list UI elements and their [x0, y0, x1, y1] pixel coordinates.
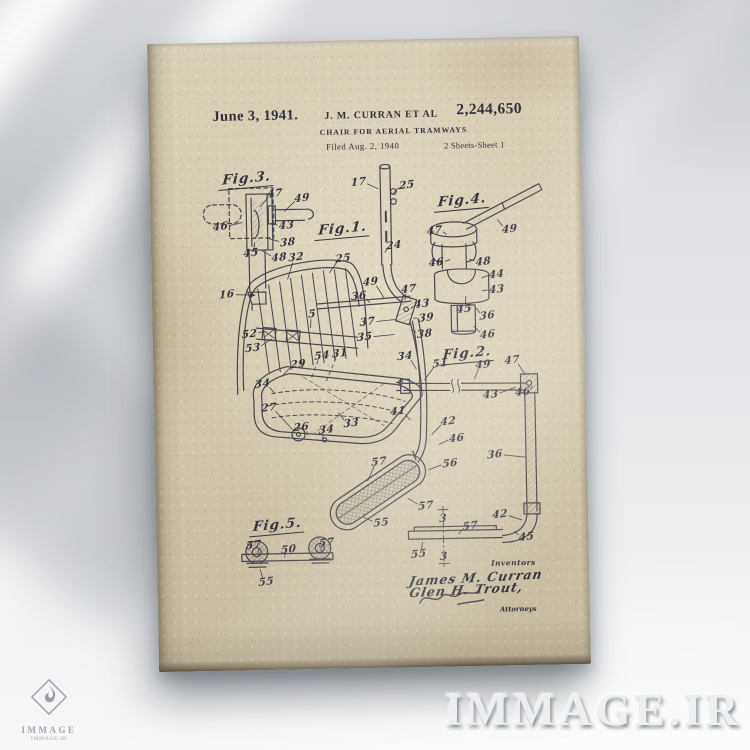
- ref-numeral-57: 57: [418, 499, 434, 513]
- ref-numeral-45: 45: [456, 302, 472, 316]
- ref-numeral-43: 43: [279, 219, 295, 233]
- ref-numeral-32: 32: [288, 250, 304, 264]
- attorneys-label: Attorneys: [500, 605, 537, 614]
- ref-numeral-55: 55: [411, 547, 427, 561]
- ref-numeral-37: 37: [360, 315, 376, 329]
- ref-numeral-43: 43: [483, 388, 499, 402]
- ref-numeral-3: 3: [440, 550, 448, 563]
- logo-wordmark: IMMAGE: [12, 725, 86, 735]
- ref-numeral-49: 49: [475, 358, 491, 372]
- ref-numeral-36: 36: [487, 448, 503, 462]
- ref-numeral-49: 49: [363, 275, 379, 289]
- ref-numeral-46: 46: [480, 328, 496, 342]
- figure-label: Fig.3.: [218, 168, 274, 191]
- figure-label: Fig.4.: [434, 190, 490, 213]
- ref-numeral-48: 48: [475, 255, 491, 269]
- ref-numeral-46: 46: [449, 431, 465, 445]
- ref-numeral-34: 34: [319, 423, 335, 437]
- canvas-print: June 3, 1941. J. M. CURRAN ET AL 2,244,6…: [147, 36, 591, 672]
- ref-numeral-45: 45: [243, 246, 259, 260]
- ref-numeral-34: 34: [397, 349, 413, 363]
- ref-numeral-55: 55: [259, 575, 275, 589]
- ref-numeral-35: 35: [357, 330, 373, 344]
- ref-numeral-17: 17: [351, 175, 367, 189]
- ref-numeral-39: 39: [418, 311, 434, 325]
- logo-diamond-icon: [27, 675, 71, 719]
- ref-numeral-5: 5: [308, 308, 316, 321]
- product-photo-scene: June 3, 1941. J. M. CURRAN ET AL 2,244,6…: [0, 0, 750, 750]
- ref-numeral-16: 16: [219, 288, 235, 302]
- ref-numeral-56: 56: [442, 456, 458, 470]
- watermark-logo: IMMAGE IMMAGE.IR: [12, 675, 86, 742]
- ref-numeral-55: 55: [373, 516, 389, 530]
- ref-numeral-38: 38: [280, 236, 296, 250]
- ref-numeral-43: 43: [414, 297, 430, 311]
- ref-numeral-48: 48: [271, 251, 287, 265]
- flame-icon: [45, 685, 55, 702]
- ref-numeral-54: 54: [314, 349, 330, 363]
- aged-paper: June 3, 1941. J. M. CURRAN ET AL 2,244,6…: [147, 36, 591, 672]
- ref-numeral-57: 57: [319, 536, 335, 550]
- ref-numeral-38: 38: [417, 327, 433, 341]
- ref-numeral-36: 36: [479, 309, 495, 323]
- ref-numeral-47: 47: [504, 353, 520, 367]
- figure-label: Fig.5.: [249, 514, 305, 537]
- ref-numeral-42: 42: [492, 507, 508, 521]
- watermark-site-text: IMMAGE.IR: [445, 684, 742, 736]
- ref-numeral-27: 27: [261, 401, 277, 415]
- ref-numeral-25: 25: [335, 251, 351, 265]
- ref-numeral-33: 33: [343, 416, 359, 430]
- ref-numeral-49: 49: [294, 191, 310, 205]
- ref-numeral-45: 45: [519, 530, 535, 544]
- ref-numeral-52: 52: [242, 327, 258, 341]
- ref-numeral-29: 29: [290, 357, 306, 371]
- ref-numeral-57: 57: [462, 519, 478, 533]
- ref-numeral-46: 46: [515, 385, 531, 399]
- patent-sheet: June 3, 1941. J. M. CURRAN ET AL 2,244,6…: [147, 36, 591, 672]
- ref-numeral-42: 42: [440, 414, 456, 428]
- ref-numeral-34: 34: [255, 377, 271, 391]
- ref-numeral-47: 47: [427, 224, 443, 238]
- ref-numeral-26: 26: [294, 420, 310, 434]
- ref-numeral-53: 53: [245, 341, 261, 355]
- ref-numeral-36: 36: [351, 289, 367, 303]
- logo-subtext: IMMAGE.IR: [12, 736, 86, 742]
- ref-numeral-51: 51: [432, 357, 448, 371]
- ref-numeral-57: 57: [371, 455, 387, 469]
- ref-numeral-25: 25: [399, 178, 415, 192]
- ref-numeral-46: 46: [428, 256, 444, 270]
- ref-numeral-47: 47: [401, 282, 417, 296]
- ref-numeral-57: 57: [246, 538, 262, 552]
- ref-numeral-43: 43: [489, 283, 505, 297]
- ref-numeral-49: 49: [502, 222, 518, 236]
- ref-numeral-3: 3: [439, 512, 447, 525]
- ref-numeral-31: 31: [332, 347, 348, 361]
- figure-label: Fig.1.: [314, 218, 370, 241]
- ref-numeral-44: 44: [489, 268, 505, 282]
- ref-numeral-41: 41: [390, 404, 406, 418]
- ref-numeral-47: 47: [267, 187, 283, 201]
- ref-numeral-46: 46: [213, 220, 229, 234]
- ref-numeral-50: 50: [281, 543, 297, 557]
- ref-numeral-24: 24: [386, 238, 402, 252]
